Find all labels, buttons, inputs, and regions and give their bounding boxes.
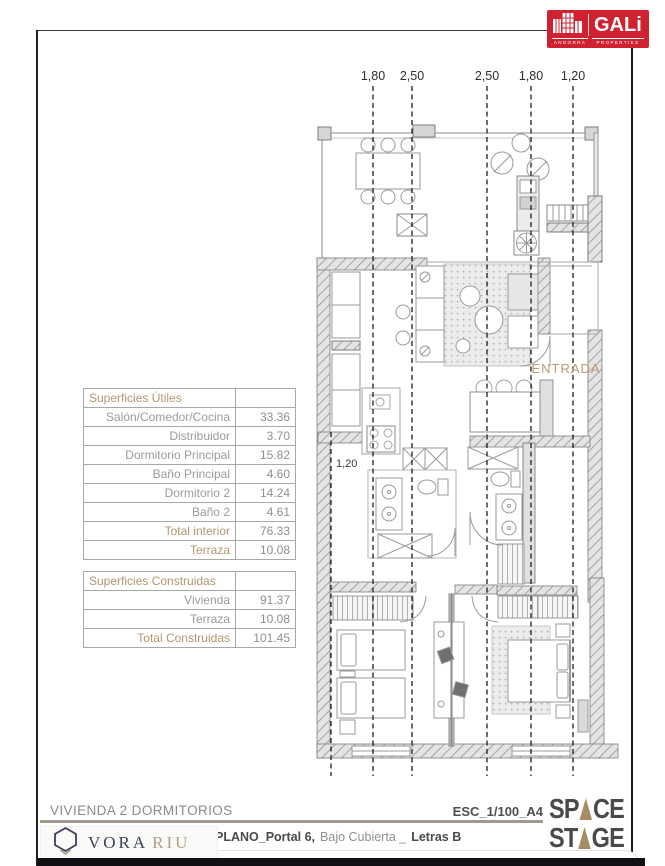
bath-principal	[468, 443, 535, 584]
side-table	[396, 331, 410, 345]
stage-text: CE	[593, 796, 624, 822]
kitchen-island	[470, 380, 540, 432]
chair	[452, 682, 468, 698]
dim-label-inner: 1,20	[336, 458, 357, 470]
plano-line: PLANO_Portal 6,Bajo Cubierta _Letras B	[215, 830, 466, 844]
stage-text: SP	[549, 796, 579, 822]
scale-label: ESC_1/100_A4	[400, 804, 543, 819]
footer-black-bar	[37, 858, 645, 866]
stage-triangle-icon	[580, 798, 593, 820]
terrace-dining-table	[356, 138, 420, 204]
dim-label: 1,80	[361, 69, 385, 83]
side-table	[396, 305, 410, 319]
riu-word: RIU	[152, 833, 190, 852]
plan-sheet: GALi ANDORRA PROPERTIES Superficies Útil…	[0, 0, 665, 866]
space-stage-logo: SPCE STGE	[549, 793, 624, 851]
stage-text: ST	[549, 825, 577, 851]
stage-triangle-icon	[578, 827, 591, 849]
dim-label: 1,80	[519, 69, 543, 83]
terrace	[318, 125, 602, 262]
nightstand	[556, 624, 570, 637]
dim-label: 2,50	[475, 69, 499, 83]
nightstand	[556, 705, 570, 718]
single-bed	[337, 678, 405, 718]
desk-area	[434, 594, 468, 746]
footer-rule	[40, 820, 543, 823]
single-bed	[337, 630, 405, 670]
sheet-title: VIVIENDA 2 DORMITORIOS	[50, 803, 233, 818]
dim-label: 2,50	[400, 69, 424, 83]
terrace-lounge-chairs	[491, 134, 549, 180]
plano-label: PLANO_Portal 6,	[215, 830, 315, 844]
toilet	[491, 472, 509, 486]
bedroom-principal	[472, 596, 588, 732]
entrada-label: ENTRADA	[531, 361, 600, 376]
door-arc	[427, 528, 455, 556]
tv-unit	[508, 274, 538, 310]
plano-mid: Bajo Cubierta _	[320, 830, 406, 844]
sofa	[416, 266, 444, 362]
toilet	[418, 480, 436, 494]
floor-plan-svg: 1,80 2,50 2,50 1,80 1,20 1,20 ENTRADA	[0, 0, 665, 866]
stage-text: GE	[592, 825, 624, 851]
vora-hexagon-icon	[52, 826, 79, 860]
vora-word: VORA	[88, 833, 148, 852]
terrace-heater-unit	[514, 176, 539, 255]
double-bed	[508, 640, 570, 702]
plano-end: Letras B	[411, 830, 461, 844]
door-arc	[472, 596, 498, 622]
hall-wardrobe	[403, 448, 447, 470]
shower-floor	[498, 544, 524, 584]
kitchen	[362, 380, 540, 470]
dim-label: 1,20	[561, 69, 585, 83]
vora-riu-logo: VORARIU	[40, 826, 218, 860]
